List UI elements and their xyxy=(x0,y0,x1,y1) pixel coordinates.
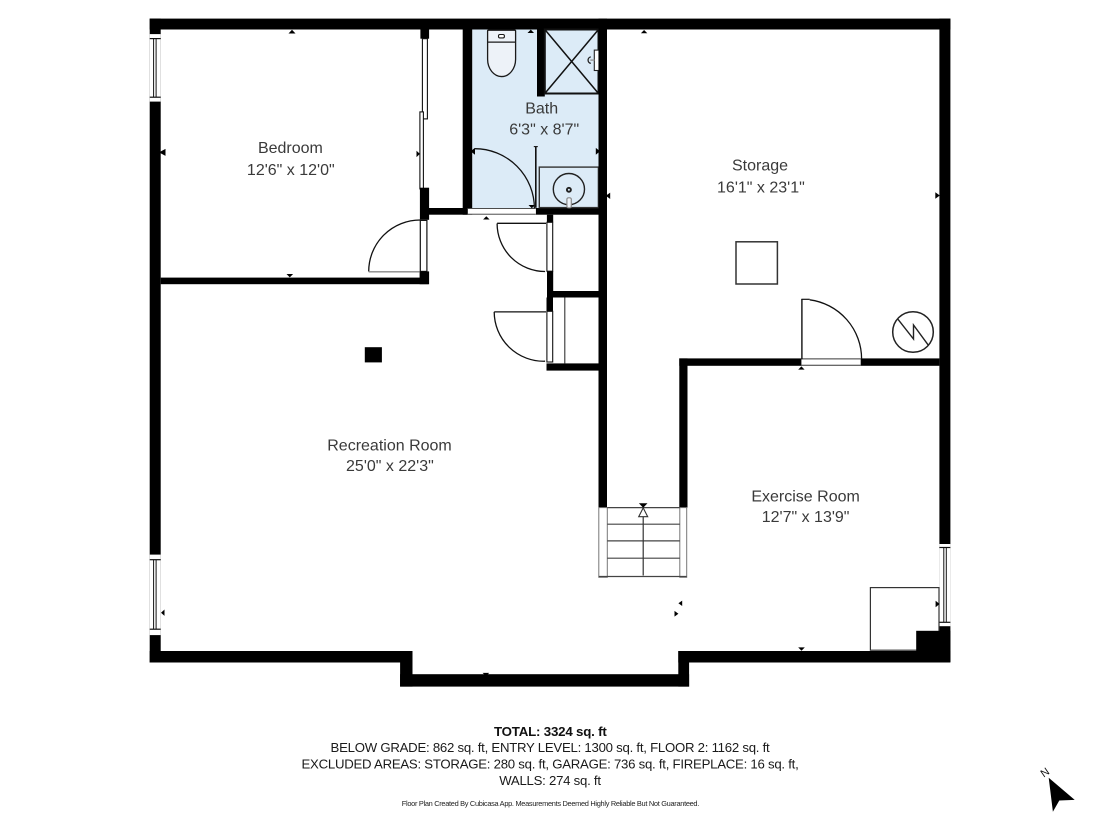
svg-text:Exercise Room: Exercise Room xyxy=(751,488,859,505)
svg-text:25'0" x 22'3": 25'0" x 22'3" xyxy=(346,458,434,475)
svg-text:12'6" x 12'0": 12'6" x 12'0" xyxy=(247,162,335,179)
svg-text:12'7" x 13'9": 12'7" x 13'9" xyxy=(762,509,850,526)
svg-text:6'3" x 8'7": 6'3" x 8'7" xyxy=(509,121,579,138)
svg-text:EXCLUDED AREAS: STORAGE: 280 s: EXCLUDED AREAS: STORAGE: 280 sq. ft, GAR… xyxy=(302,756,799,771)
svg-text:Floor Plan Created By Cubicasa: Floor Plan Created By Cubicasa App. Meas… xyxy=(402,799,699,808)
svg-text:WALLS: 274 sq. ft: WALLS: 274 sq. ft xyxy=(499,773,601,788)
svg-text:BELOW GRADE: 862 sq. ft, ENTRY: BELOW GRADE: 862 sq. ft, ENTRY LEVEL: 13… xyxy=(331,740,770,755)
svg-text:Recreation Room: Recreation Room xyxy=(327,438,452,455)
svg-text:Bath: Bath xyxy=(525,100,558,117)
svg-text:Bedroom: Bedroom xyxy=(258,140,323,157)
svg-text:Storage: Storage xyxy=(732,158,788,175)
svg-text:TOTAL: 3324 sq. ft: TOTAL: 3324 sq. ft xyxy=(494,724,607,739)
svg-text:16'1" x 23'1": 16'1" x 23'1" xyxy=(717,179,805,196)
